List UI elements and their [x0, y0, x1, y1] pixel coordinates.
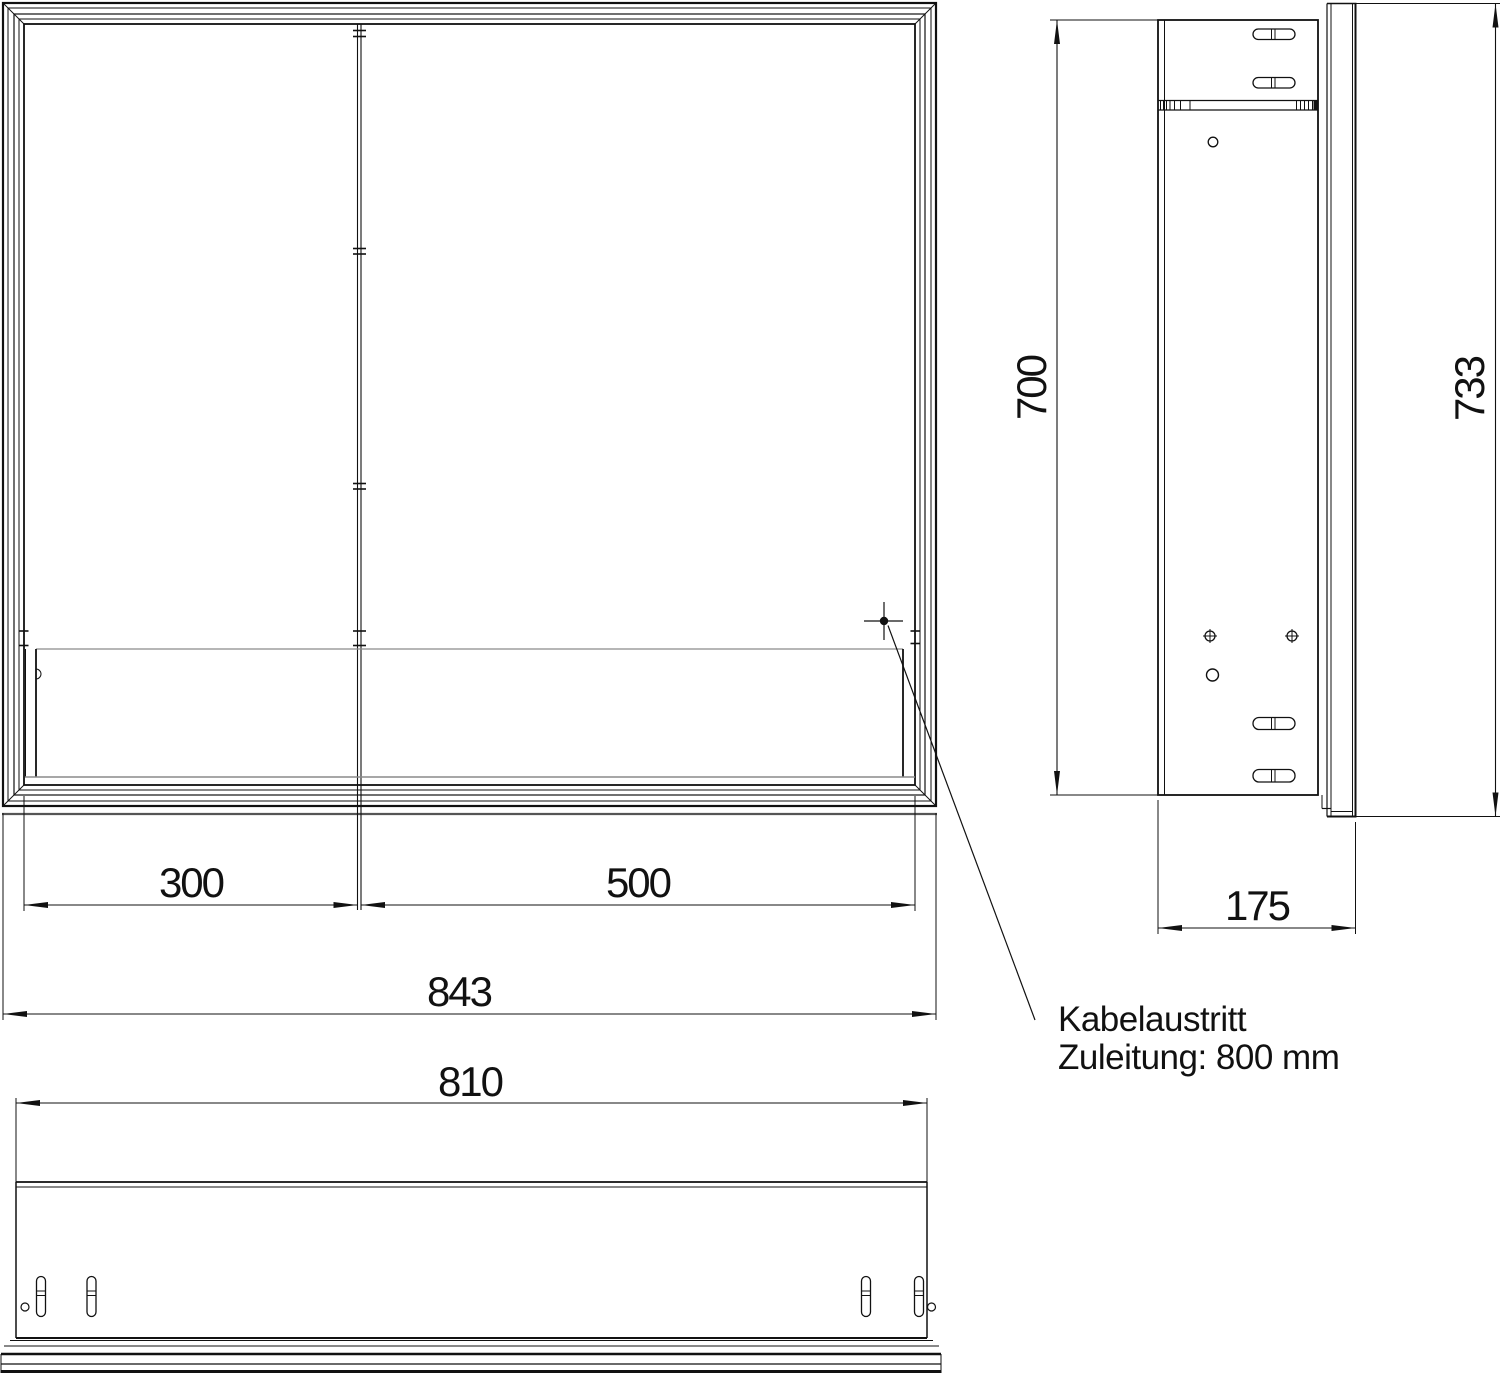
hinge-ticks — [20, 31, 920, 646]
screw-hole-top — [1208, 137, 1218, 147]
cable-exit-point — [880, 617, 888, 625]
dim-label-overall-height: 733 — [1446, 356, 1493, 421]
bottom-dimensions: 810 — [16, 1058, 927, 1182]
mirror-cabinet-drawing: 300 500 843 — [0, 0, 1500, 1376]
cable-exit-mark — [864, 602, 903, 640]
cable-exit-annotation: Kabelaustritt Zuleitung: 800 mm — [888, 626, 1339, 1078]
frame-miter-corners — [3, 3, 936, 806]
front-frame-inner-edge — [24, 24, 915, 785]
annotation-line-1: Kabelaustritt — [1058, 1000, 1247, 1039]
front-frame-line-3 — [14, 14, 925, 795]
mounting-rail — [1158, 101, 1318, 111]
dim-label-left-door-width: 300 — [159, 859, 224, 906]
front-outer-frame — [3, 3, 936, 806]
slot-holes-bottom — [1253, 718, 1295, 783]
side-door-panel — [1322, 4, 1357, 817]
technical-drawing-page: 300 500 843 — [0, 0, 1500, 1376]
bottom-mounting-slots — [21, 1277, 936, 1317]
bottom-door-profile — [1, 1341, 941, 1374]
front-frame-line-4 — [19, 19, 920, 790]
side-view — [1158, 4, 1357, 817]
front-dimensions: 300 500 843 — [3, 796, 936, 1020]
screw-holes-middle — [1203, 629, 1299, 681]
dim-label-overall-width: 843 — [427, 968, 492, 1015]
side-carcass — [1158, 20, 1318, 795]
dim-label-depth: 175 — [1225, 882, 1290, 929]
leader-line — [888, 626, 1035, 1021]
annotation-line-2: Zuleitung: 800 mm — [1058, 1038, 1339, 1077]
dim-label-right-door-width: 500 — [606, 859, 671, 906]
dim-label-carcass-height: 700 — [1008, 355, 1055, 420]
front-frame-line-2 — [8, 8, 931, 801]
bottom-view — [1, 1182, 941, 1373]
front-view — [2, 3, 937, 910]
light-niche — [25, 649, 915, 777]
slot-holes-top — [1253, 29, 1295, 88]
dim-label-body-width: 810 — [438, 1058, 503, 1105]
